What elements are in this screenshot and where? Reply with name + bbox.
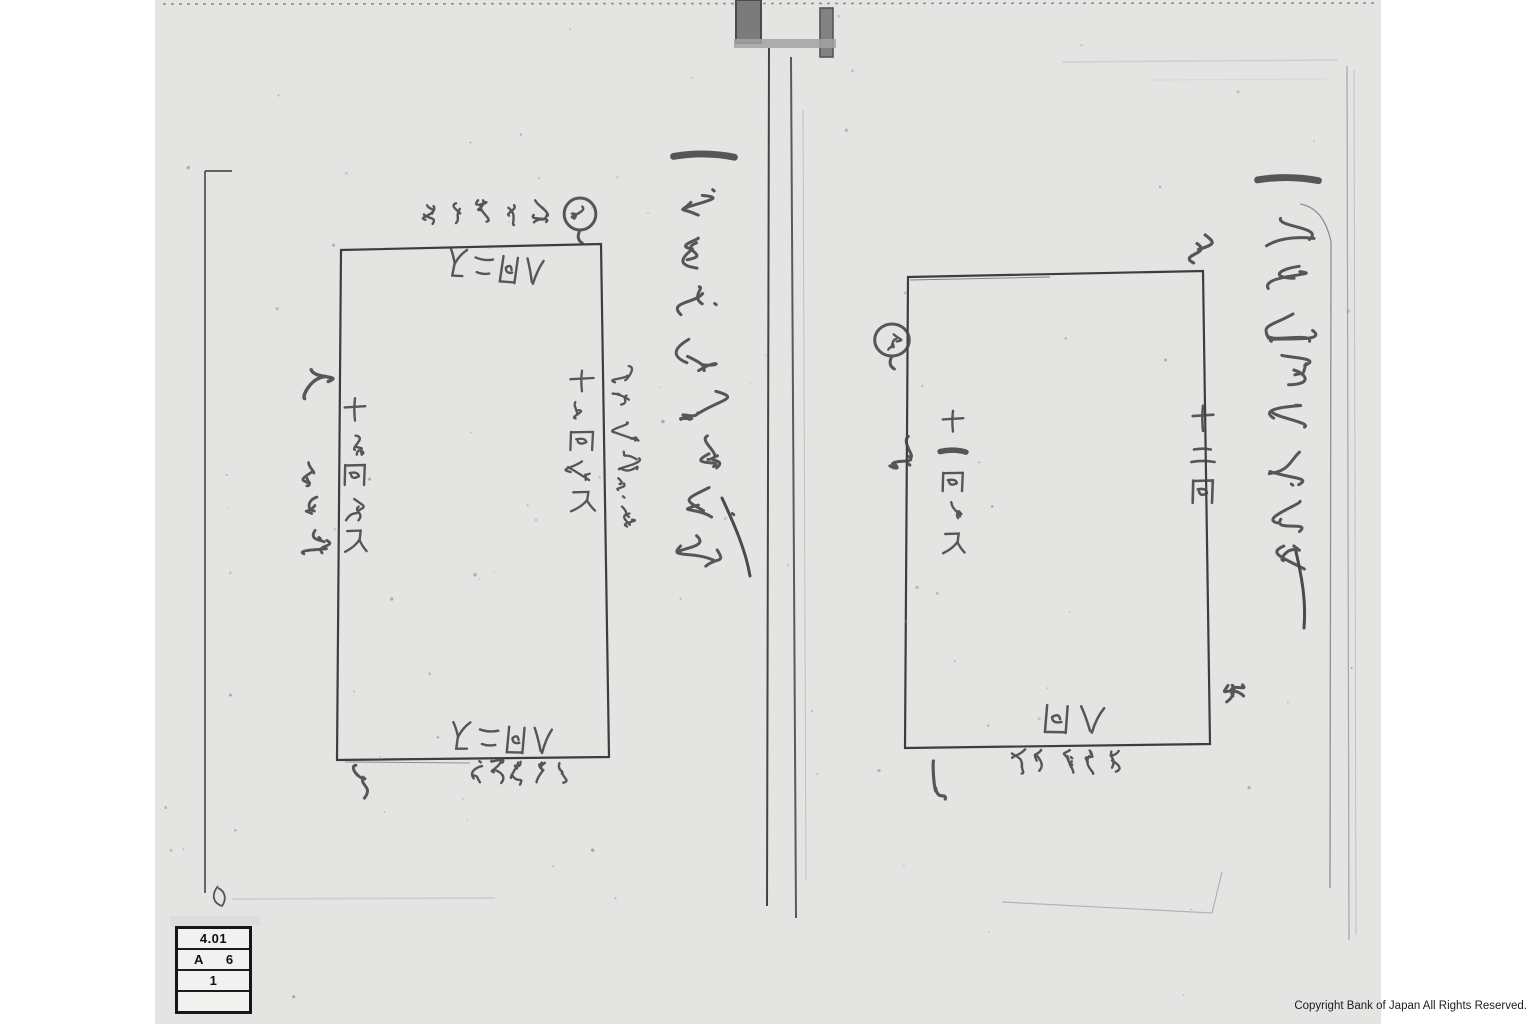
annotation-right-page-left-inside — [936, 406, 970, 558]
annotation-left-page-right-inside — [563, 366, 601, 516]
annotation-right-page-header — [1248, 156, 1328, 586]
annotation-left-page-north-mark — [290, 360, 338, 410]
archive-label-row-1: 4.01 — [178, 929, 249, 950]
annotation-right-page-west-mark — [868, 320, 916, 370]
archive-label-row-2: A 6 — [178, 950, 249, 971]
archive-label-row-3: 1 — [178, 971, 249, 992]
archive-label: 4.01 A 6 1 — [175, 926, 252, 1014]
scanned-document-viewer: 4.01 A 6 1 Copyright Bank of Japan All R… — [0, 0, 1536, 1024]
archive-item: 1 — [210, 973, 218, 988]
annotation-right-page-south-mark — [916, 748, 958, 806]
archive-series: A — [194, 952, 204, 967]
annotation-left-page-header — [664, 132, 744, 572]
annotation-left-page-bottom-inside — [447, 714, 558, 763]
archive-code: 4.01 — [200, 931, 227, 946]
annotation-right-page-left-outside — [881, 422, 923, 474]
annotation-left-page-left-outside — [296, 456, 332, 558]
annotation-right-page-east-mark — [1214, 672, 1260, 726]
archive-number: 6 — [226, 952, 234, 967]
annotation-left-page-south-mark — [346, 756, 382, 804]
annotation-left-page-corner-seal — [558, 194, 602, 244]
annotation-right-page-north-mark — [1174, 226, 1222, 272]
archive-label-row-4 — [178, 992, 249, 1011]
annotation-right-page-right-inside — [1186, 400, 1220, 510]
annotation-left-page-left-inside — [338, 393, 372, 557]
copyright-notice: Copyright Bank of Japan All Rights Reser… — [1294, 1000, 1527, 1012]
annotation-right-page-bottom-outside — [1006, 745, 1131, 781]
annotation-right-page-bottom-inside — [1037, 696, 1111, 744]
annotation-left-page-top-outside — [413, 196, 555, 232]
annotation-left-page-right-outside — [606, 358, 648, 530]
annotation-left-page-bottom-outside — [465, 756, 570, 792]
